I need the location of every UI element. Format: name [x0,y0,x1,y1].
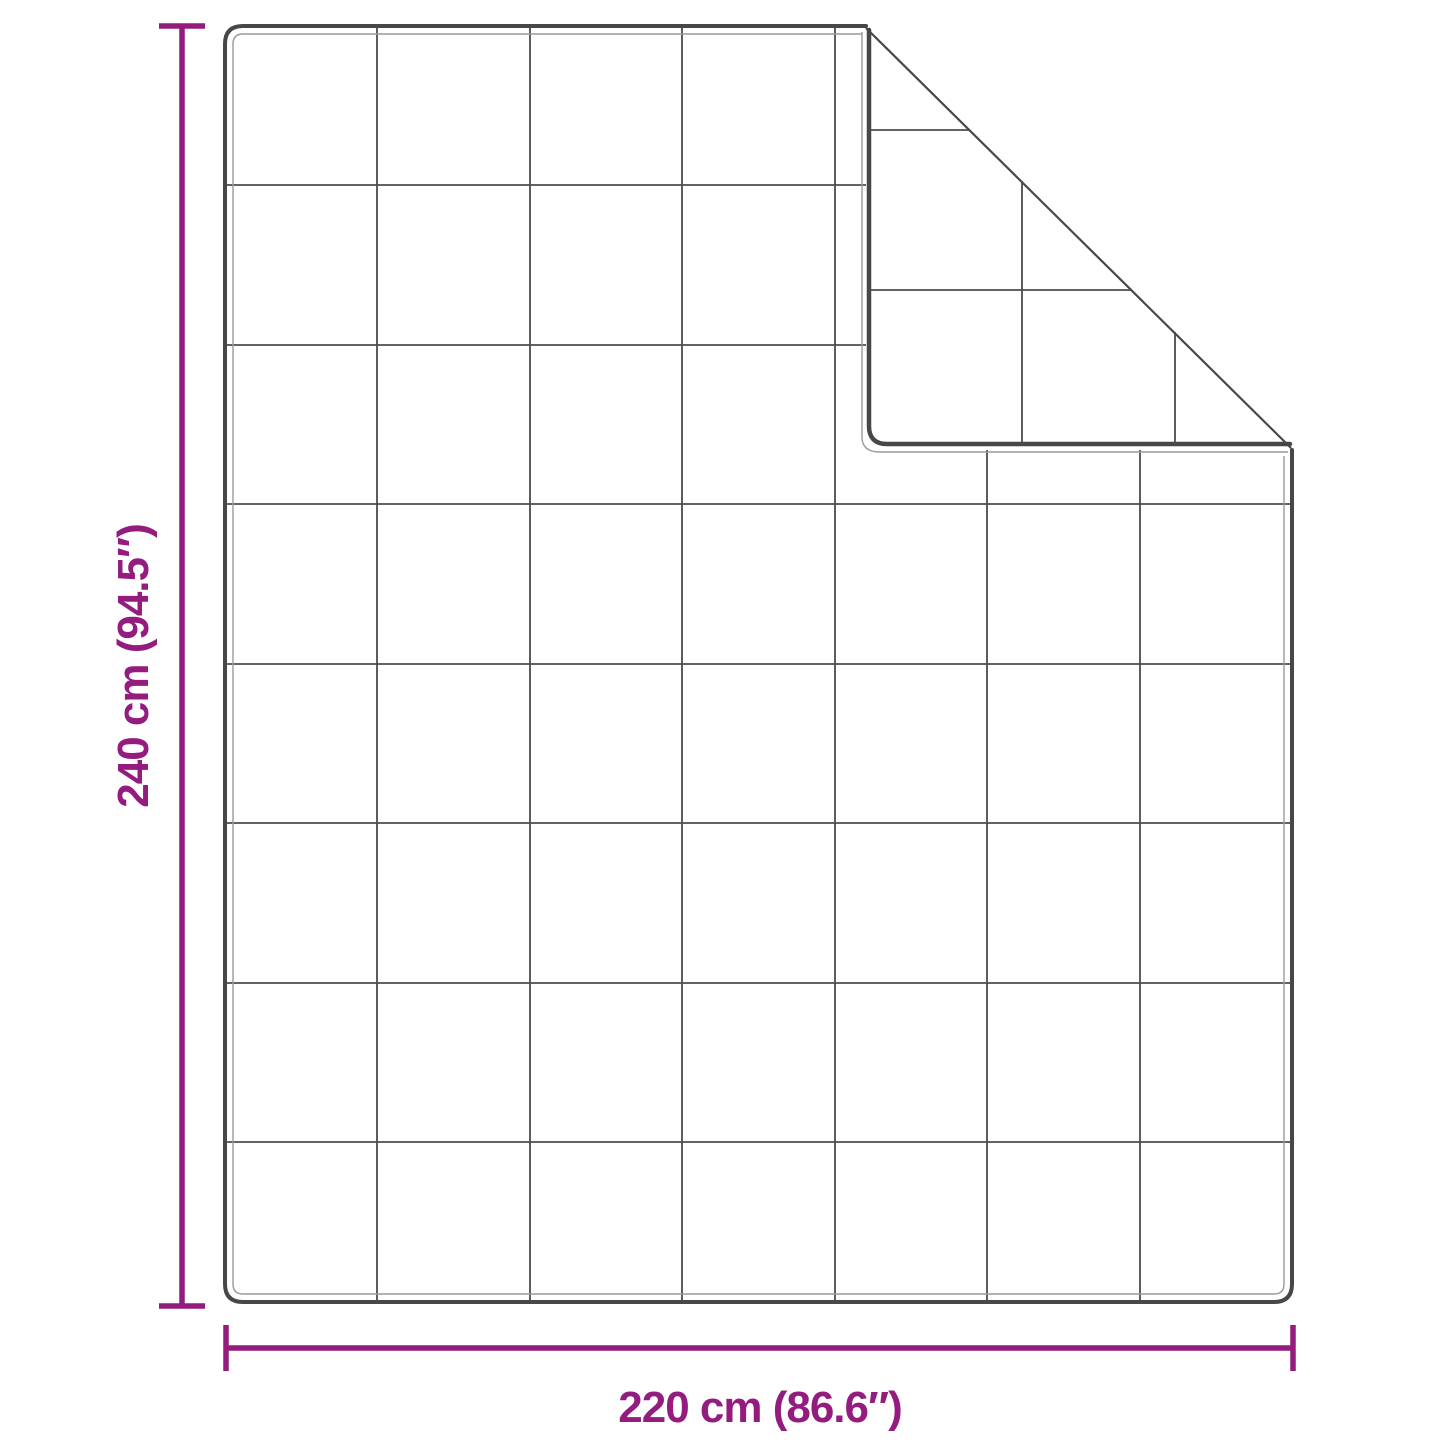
width-dimension-line [226,1325,1293,1371]
height-label: 240 cm (94.5″) [108,366,160,966]
blanket-diagram [0,0,1445,1445]
width-label: 220 cm (86.6″) [360,1382,1160,1434]
blanket-size-figure: 240 cm (94.5″) 220 cm (86.6″) [0,0,1445,1445]
height-dimension-line [159,26,205,1306]
